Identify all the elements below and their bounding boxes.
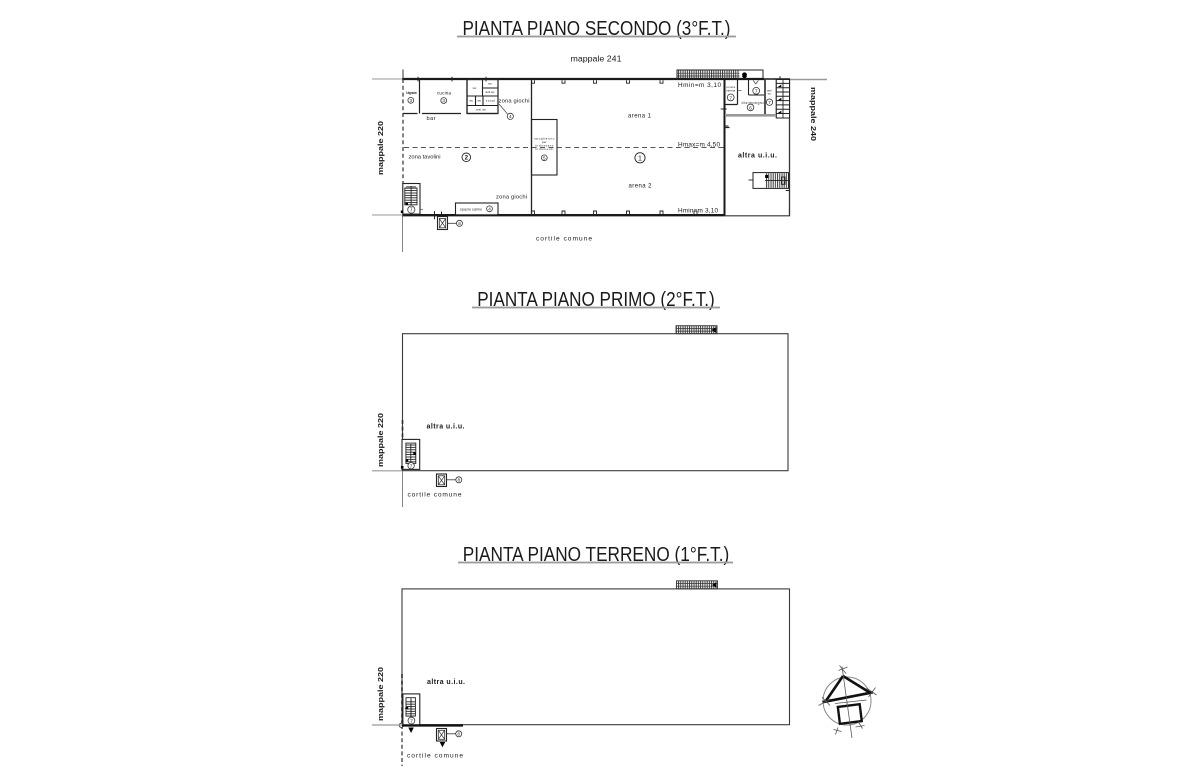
svg-text:zona giochi: zona giochi bbox=[496, 195, 527, 201]
svg-text:7: 7 bbox=[768, 100, 771, 106]
svg-text:wc: wc bbox=[469, 99, 473, 103]
svg-text:7: 7 bbox=[729, 95, 732, 101]
svg-text:arena 1: arena 1 bbox=[628, 114, 652, 120]
svg-text:cortile comune: cortile comune bbox=[408, 492, 462, 499]
svg-text:4: 4 bbox=[509, 114, 512, 120]
svg-text:5: 5 bbox=[543, 156, 546, 161]
svg-text:arena 2: arena 2 bbox=[629, 184, 653, 190]
svg-text:2: 2 bbox=[465, 155, 469, 162]
svg-text:7: 7 bbox=[755, 89, 758, 95]
svg-text:wc: wc bbox=[477, 99, 481, 103]
svg-text:zona giochi: zona giochi bbox=[499, 99, 530, 105]
svg-text:3: 3 bbox=[442, 98, 445, 103]
svg-text:3: 3 bbox=[410, 98, 413, 103]
svg-text:mappale 220: mappale 220 bbox=[377, 667, 385, 721]
svg-text:bar: bar bbox=[427, 116, 436, 122]
svg-text:4: 4 bbox=[488, 207, 491, 212]
svg-text:spogl: spogl bbox=[486, 99, 495, 103]
svg-text:8: 8 bbox=[458, 478, 461, 483]
svg-text:altra u.i.u.: altra u.i.u. bbox=[427, 424, 465, 431]
svg-text:altra u.i.u.: altra u.i.u. bbox=[427, 679, 465, 686]
svg-text:mappale 220: mappale 220 bbox=[377, 121, 385, 175]
svg-text:Hmin=m 3,10: Hmin=m 3,10 bbox=[678, 208, 718, 215]
svg-text:wc: wc bbox=[768, 92, 772, 96]
svg-text:7: 7 bbox=[410, 208, 413, 214]
svg-text:disimpegno: disimpegno bbox=[742, 101, 765, 105]
svg-text:mappale 241: mappale 241 bbox=[571, 55, 623, 64]
svg-text:8: 8 bbox=[458, 221, 461, 226]
svg-text:zona tavolini: zona tavolini bbox=[409, 154, 441, 160]
svg-text:8: 8 bbox=[457, 732, 460, 737]
svg-text:anti wc: anti wc bbox=[476, 108, 487, 112]
svg-text:mappale 220: mappale 220 bbox=[377, 413, 385, 467]
svg-text:Hmin=m 3,10: Hmin=m 3,10 bbox=[678, 82, 721, 89]
svg-text:altra u.i.u.: altra u.i.u. bbox=[738, 153, 777, 160]
svg-text:Magazzino: Magazzino bbox=[406, 91, 417, 95]
svg-text:Hmax=m 4,50: Hmax=m 4,50 bbox=[678, 142, 720, 149]
svg-text:interna: interna bbox=[726, 89, 735, 93]
svg-text:1: 1 bbox=[638, 155, 642, 162]
svg-text:cortile comune: cortile comune bbox=[536, 236, 592, 243]
svg-text:cucina: cucina bbox=[437, 91, 451, 96]
svg-text:spazio calmo: spazio calmo bbox=[460, 208, 482, 212]
svg-text:6: 6 bbox=[749, 105, 752, 111]
svg-text:wc: wc bbox=[473, 86, 477, 90]
svg-text:mappale 240: mappale 240 bbox=[809, 87, 817, 141]
svg-text:7: 7 bbox=[410, 719, 413, 725]
svg-text:7: 7 bbox=[410, 464, 413, 470]
svg-text:wc: wc bbox=[488, 82, 492, 86]
svg-text:indumenti: indumenti bbox=[535, 147, 553, 151]
svg-text:anti wc: anti wc bbox=[486, 90, 496, 94]
svg-text:cortile comune: cortile comune bbox=[407, 752, 463, 759]
